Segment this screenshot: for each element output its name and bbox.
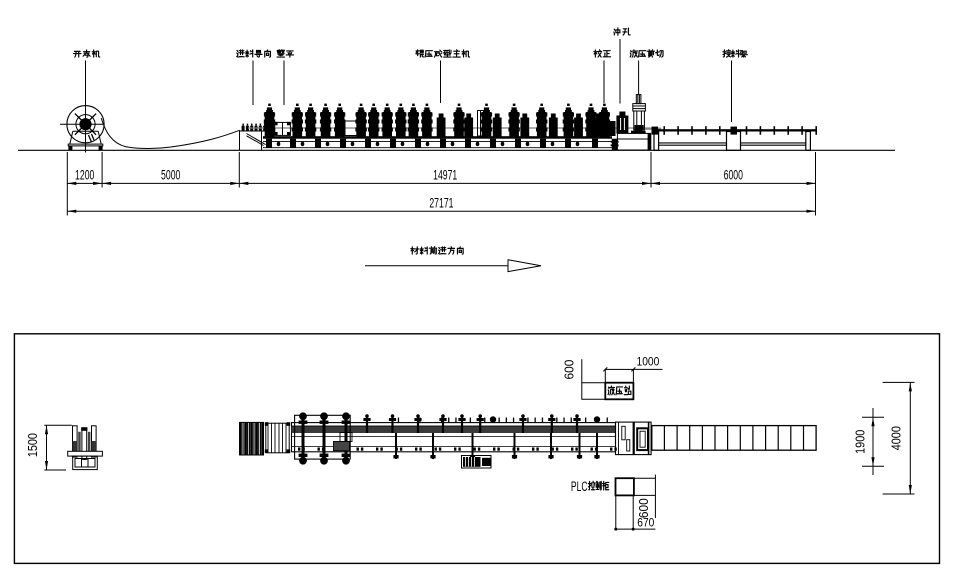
svg-text:1500: 1500 — [26, 433, 40, 458]
svg-text:14971: 14971 — [433, 168, 457, 184]
svg-text:5000: 5000 — [161, 168, 181, 184]
svg-text:4000: 4000 — [890, 426, 904, 451]
svg-text:6000: 6000 — [724, 168, 744, 184]
svg-text:1200: 1200 — [75, 168, 95, 184]
svg-text:PLC: PLC — [571, 480, 588, 494]
svg-text:1000: 1000 — [637, 356, 660, 369]
svg-text:670: 670 — [637, 517, 654, 530]
svg-text:1900: 1900 — [854, 429, 868, 454]
svg-text:600: 600 — [637, 498, 651, 518]
svg-text:27171: 27171 — [429, 195, 453, 211]
svg-text:600: 600 — [562, 359, 576, 379]
